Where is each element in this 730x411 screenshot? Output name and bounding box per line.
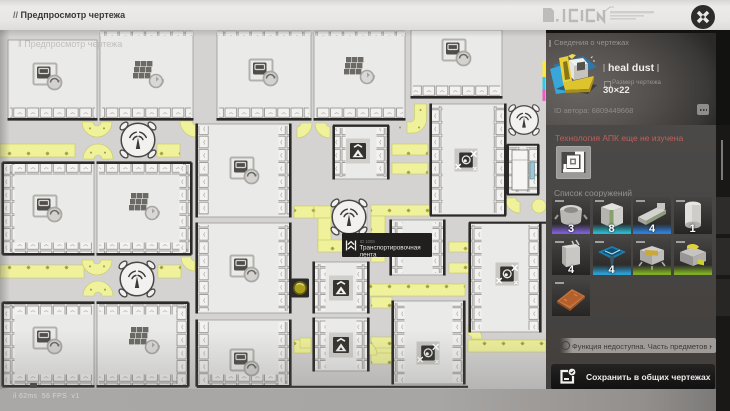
svg-text:лента: лента (360, 252, 377, 259)
svg-text:Транспортировочная: Транспортировочная (360, 245, 421, 252)
svg-text:ID 1008: ID 1008 (360, 239, 375, 244)
svg-text:‖ Предпросмотр чертежа: ‖ Предпросмотр чертежа (18, 39, 122, 49)
